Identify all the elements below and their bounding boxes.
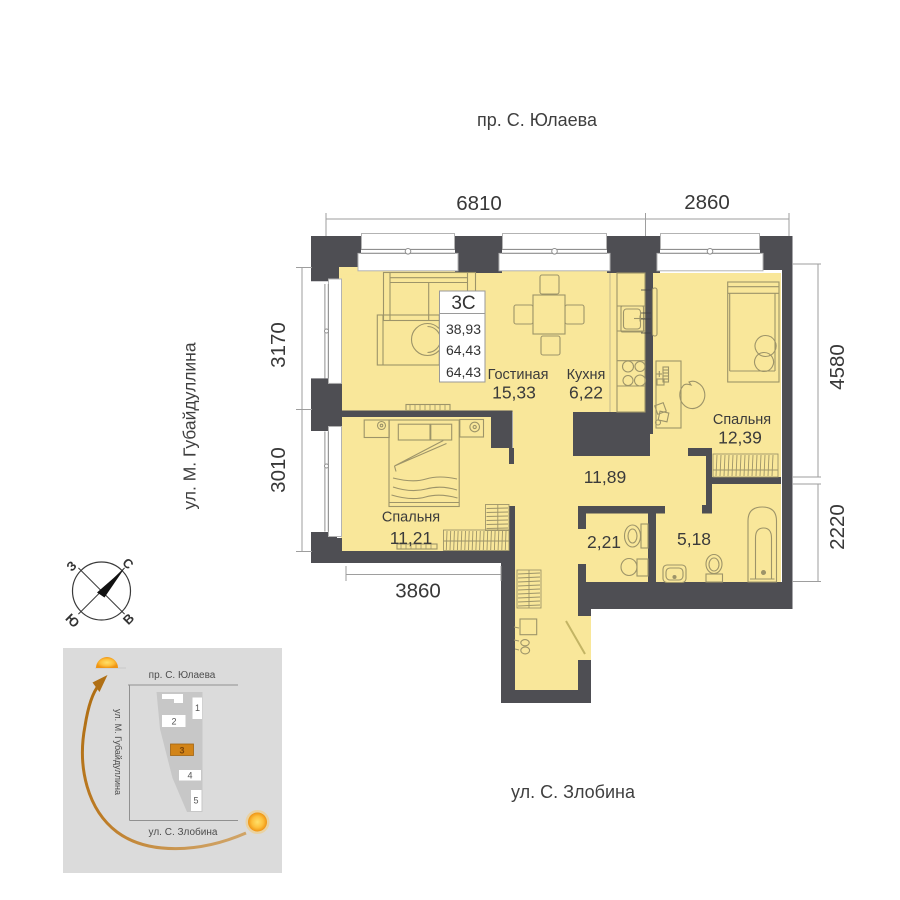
- svg-text:3: 3: [179, 746, 184, 756]
- svg-text:12,39: 12,39: [718, 428, 762, 448]
- svg-text:3170: 3170: [267, 322, 290, 368]
- svg-text:Спальня: Спальня: [382, 510, 440, 526]
- svg-text:пр. С. Юлаева: пр. С. Юлаева: [149, 670, 216, 681]
- svg-text:64,43: 64,43: [446, 364, 481, 380]
- svg-text:Спальня: Спальня: [713, 412, 771, 428]
- svg-text:15,33: 15,33: [492, 383, 536, 403]
- svg-text:5: 5: [193, 796, 198, 806]
- svg-text:3860: 3860: [395, 580, 441, 603]
- svg-text:ул. С. Злобина: ул. С. Злобина: [149, 826, 218, 838]
- svg-text:4: 4: [187, 771, 192, 781]
- svg-text:5,18: 5,18: [677, 529, 711, 549]
- svg-text:11,21: 11,21: [390, 528, 433, 548]
- svg-text:64,43: 64,43: [446, 342, 481, 358]
- svg-text:пр. С. Юлаева: пр. С. Юлаева: [477, 110, 598, 130]
- svg-text:2860: 2860: [684, 191, 730, 214]
- svg-text:6810: 6810: [456, 192, 502, 215]
- svg-text:ул. М. Губайдуллина: ул. М. Губайдуллина: [113, 709, 123, 795]
- svg-text:4580: 4580: [826, 344, 849, 390]
- svg-text:2220: 2220: [826, 504, 849, 550]
- svg-text:38,93: 38,93: [446, 321, 481, 337]
- svg-text:3С: 3С: [451, 293, 475, 314]
- svg-text:ул. С. Злобина: ул. С. Злобина: [511, 782, 636, 802]
- svg-text:Кухня: Кухня: [567, 367, 606, 383]
- svg-text:2: 2: [171, 717, 176, 727]
- svg-text:ул. М. Губайдуллина: ул. М. Губайдуллина: [180, 342, 200, 509]
- svg-text:11,89: 11,89: [584, 467, 627, 487]
- svg-text:2,21: 2,21: [587, 532, 621, 552]
- svg-text:Гостиная: Гостиная: [488, 367, 549, 383]
- svg-text:1: 1: [195, 703, 200, 713]
- svg-text:6,22: 6,22: [569, 383, 603, 403]
- svg-text:3010: 3010: [267, 447, 290, 493]
